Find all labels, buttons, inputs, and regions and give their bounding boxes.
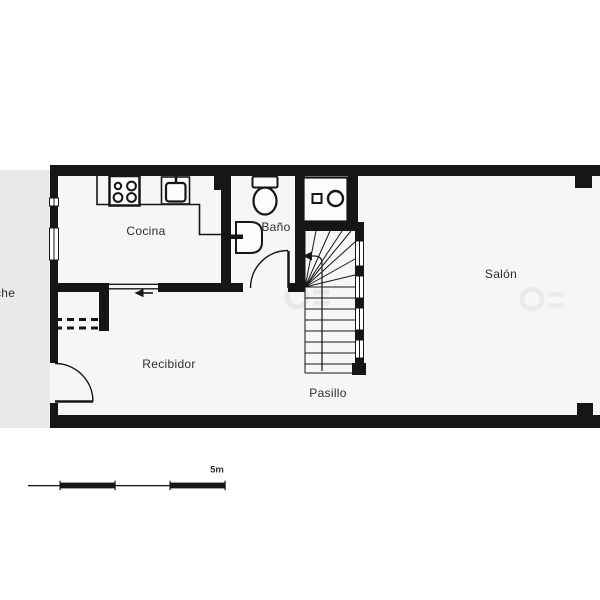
stove-icon xyxy=(110,176,140,206)
floorplan-drawing xyxy=(0,0,600,600)
toilet-icon xyxy=(253,177,278,215)
washing-machine-icon xyxy=(304,178,348,222)
scale-bar xyxy=(28,481,226,491)
floorplan-canvas: Cocina Baño Salón Recibidor Pasillo che … xyxy=(0,0,600,600)
scale-bar-label: 5m xyxy=(210,465,224,476)
room-label-bano: Baño xyxy=(261,220,290,234)
room-label-pasillo: Pasillo xyxy=(309,386,346,400)
room-label-recibidor: Recibidor xyxy=(142,357,195,371)
pillar-bottom-right xyxy=(577,403,593,415)
pillar-top-right xyxy=(575,176,592,188)
room-label-porche-fragment: che xyxy=(0,286,15,300)
bathroom-sink-icon xyxy=(231,222,262,253)
room-label-cocina: Cocina xyxy=(126,224,165,238)
room-label-salon: Salón xyxy=(485,267,517,281)
